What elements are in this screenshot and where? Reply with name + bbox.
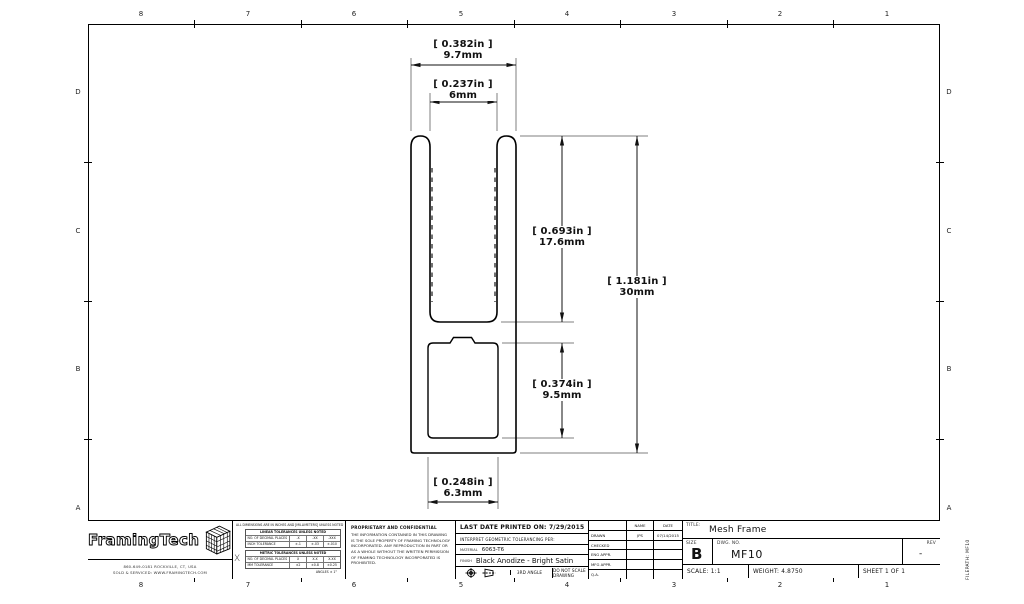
third-angle-projection-icon <box>456 568 506 578</box>
dwg-cell: DWG. NO. MF10 <box>713 539 902 564</box>
size-value: B <box>691 545 702 563</box>
tolerance-table-inch-header: LINEAR TOLERANCES UNLESS NOTED <box>246 530 340 535</box>
tolerance-note: ALL DIMENSIONS ARE IN INCHES AND [MILLIM… <box>236 523 342 527</box>
x-marker: X <box>234 554 240 564</box>
angular-tolerance: ANGLES ± 1° <box>236 570 342 574</box>
dim-slot-width-mm: 6mm <box>431 90 495 101</box>
dim-cavity-height: [ 0.374in ] 9.5mm <box>530 379 594 401</box>
tol-cell: X.XX <box>323 557 340 562</box>
sheet-text: SHEET 1 OF 1 <box>858 565 940 578</box>
finish-label: FINISH <box>460 559 472 563</box>
tolerance-table-metric-header: METRIC TOLERANCES UNLESS NOTED <box>246 551 340 556</box>
rev-value: - <box>919 549 922 559</box>
approvals-cell: NAME DATE DRAWN JPS 07/14/2015 CHECKED E… <box>588 521 682 579</box>
row-date: 07/14/2015 <box>653 531 682 540</box>
row-label: Q.A. <box>589 570 626 579</box>
tol-cell: INCH TOLERANCE <box>246 542 289 547</box>
interpret-note: INTERPRET GEOMETRIC TOLERANCING PER: <box>456 534 588 545</box>
size-cell: SIZE B <box>683 539 713 564</box>
print-date: LAST DATE PRINTED ON: 7/29/2015 <box>456 521 588 534</box>
title-row: TITLE: Mesh Frame <box>683 521 940 539</box>
row-name <box>626 570 653 579</box>
proprietary-body: THE INFORMATION CONTAINED IN THIS DRAWIN… <box>351 532 450 566</box>
dim-slot-width: [ 0.237in ] 6mm <box>431 79 495 101</box>
row-date <box>653 560 682 569</box>
dim-slot-depth-mm: 17.6mm <box>530 237 594 248</box>
row-label: CHECKED <box>589 541 626 550</box>
projection-label: 3RD ANGLE <box>510 570 548 575</box>
approval-row-eng-appr: ENG APPR. <box>589 549 682 559</box>
row-date <box>653 541 682 550</box>
dim-outer-width-in: [ 0.382in ] <box>431 39 495 50</box>
row-name <box>626 541 653 550</box>
company-contact: 860-649-0181 ROCKVILLE, CT, USA SOLD & S… <box>88 559 232 579</box>
dim-outer-width: [ 0.382in ] 9.7mm <box>431 39 495 61</box>
approval-row-qa: Q.A. <box>589 569 682 579</box>
tolerance-table-inch: LINEAR TOLERANCES UNLESS NOTED NO. OF DE… <box>245 529 341 548</box>
dwg-number: MF10 <box>731 548 763 561</box>
proprietary-cell: PROPRIETARY AND CONFIDENTIAL THE INFORMA… <box>345 521 455 579</box>
dim-cavity-height-mm: 9.5mm <box>530 390 594 401</box>
tol-cell: NO. OF DECIMAL PLACES <box>246 557 289 562</box>
tolerance-table-metric: METRIC TOLERANCES UNLESS NOTED NO. OF DE… <box>245 550 341 569</box>
tol-cell: ±.03 <box>306 542 323 547</box>
part-outline <box>411 136 516 453</box>
title-label: TITLE: <box>686 523 701 528</box>
row-name <box>626 560 653 569</box>
logo-row: FramingTech <box>88 521 232 559</box>
scale-text: SCALE: 1:1 <box>683 565 748 578</box>
profile-drawing <box>0 0 1024 604</box>
tol-cell: X.X <box>306 557 323 562</box>
rev-cell: REV - <box>902 539 940 564</box>
approvals-header-row: NAME DATE <box>589 521 682 530</box>
row-date <box>653 570 682 579</box>
dim-slot-depth-in: [ 0.693in ] <box>530 226 594 237</box>
weight-text: WEIGHT: 4.8750 <box>748 565 858 578</box>
material-value: 6063-T6 <box>482 547 504 553</box>
dim-overall-height-mm: 30mm <box>605 287 669 298</box>
proprietary-title: PROPRIETARY AND CONFIDENTIAL <box>351 525 450 530</box>
dim-overall-height-in: [ 1.181in ] <box>605 276 669 287</box>
dim-cavity-height-in: [ 0.374in ] <box>530 379 594 390</box>
inner-cavity <box>428 338 498 439</box>
tol-cell: .XX <box>306 536 323 541</box>
tol-cell: ±.010 <box>323 542 340 547</box>
projection-row: 3RD ANGLE DO NOT SCALE DRAWING <box>456 567 588 578</box>
dim-cavity-width-in: [ 0.248in ] <box>431 477 495 488</box>
dim-slot-width-in: [ 0.237in ] <box>431 79 495 90</box>
row-date <box>653 550 682 559</box>
info-cell: LAST DATE PRINTED ON: 7/29/2015 INTERPRE… <box>455 521 588 579</box>
dim-cavity-width-mm: 6.3mm <box>431 488 495 499</box>
title-block: FramingTech <box>88 520 940 578</box>
tolerance-cell: ALL DIMENSIONS ARE IN INCHES AND [MILLIM… <box>232 521 345 579</box>
tol-cell: ±0.25 <box>323 563 340 568</box>
dim-outer-width-mm: 9.7mm <box>431 50 495 61</box>
row-label: ENG APPR. <box>589 550 626 559</box>
tol-cell: ±2 <box>289 563 306 568</box>
dim-overall-height: [ 1.181in ] 30mm <box>605 276 669 298</box>
dimension-lines <box>411 65 637 502</box>
address-line2: SOLD & SERVICED: WWW.FRAMINGTECH.COM <box>113 570 207 575</box>
drawing-sheet: 8 7 6 5 4 3 2 1 8 7 6 5 4 3 2 1 D C B A … <box>0 0 1024 604</box>
name-header: NAME <box>626 521 653 530</box>
finish-value: Black Anodize - Bright Satin <box>476 557 573 565</box>
material-row: MATERIAL 6063-T6 <box>456 545 588 555</box>
row-name: JPS <box>626 531 653 540</box>
tol-cell: .XXX <box>323 536 340 541</box>
dim-cavity-width: [ 0.248in ] 6.3mm <box>431 477 495 499</box>
address-line1: 860-649-0181 ROCKVILLE, CT, USA <box>123 564 196 569</box>
company-logo: FramingTech <box>88 531 199 549</box>
material-label: MATERIAL <box>460 548 478 552</box>
approval-row-mfg-appr: MFG APPR. <box>589 559 682 569</box>
row-label: DRAWN <box>589 531 626 540</box>
tol-cell: ±0.8 <box>306 563 323 568</box>
tol-cell: NO. OF DECIMAL PLACES <box>246 536 289 541</box>
tol-cell: ±.1 <box>289 542 306 547</box>
finish-row: FINISH Black Anodize - Bright Satin <box>456 555 588 567</box>
rev-label: REV <box>927 541 936 546</box>
approval-row-drawn: DRAWN JPS 07/14/2015 <box>589 530 682 540</box>
title-area-cell: TITLE: Mesh Frame SIZE B DWG. NO. MF10 R… <box>682 521 940 579</box>
tol-cell: .X <box>289 536 306 541</box>
drawing-title: Mesh Frame <box>709 525 767 535</box>
tol-cell: X <box>289 557 306 562</box>
row-label: MFG APPR. <box>589 560 626 569</box>
dim-slot-depth: [ 0.693in ] 17.6mm <box>530 226 594 248</box>
dwg-label: DWG. NO. <box>717 541 740 546</box>
date-header: DATE <box>653 521 682 530</box>
logo-cube-icon <box>202 524 232 556</box>
logo-cell: FramingTech <box>88 521 232 579</box>
row-name <box>626 550 653 559</box>
tol-cell: MM TOLERANCE <box>246 563 289 568</box>
do-not-scale: DO NOT SCALE DRAWING <box>552 568 588 578</box>
approval-row-checked: CHECKED <box>589 540 682 550</box>
